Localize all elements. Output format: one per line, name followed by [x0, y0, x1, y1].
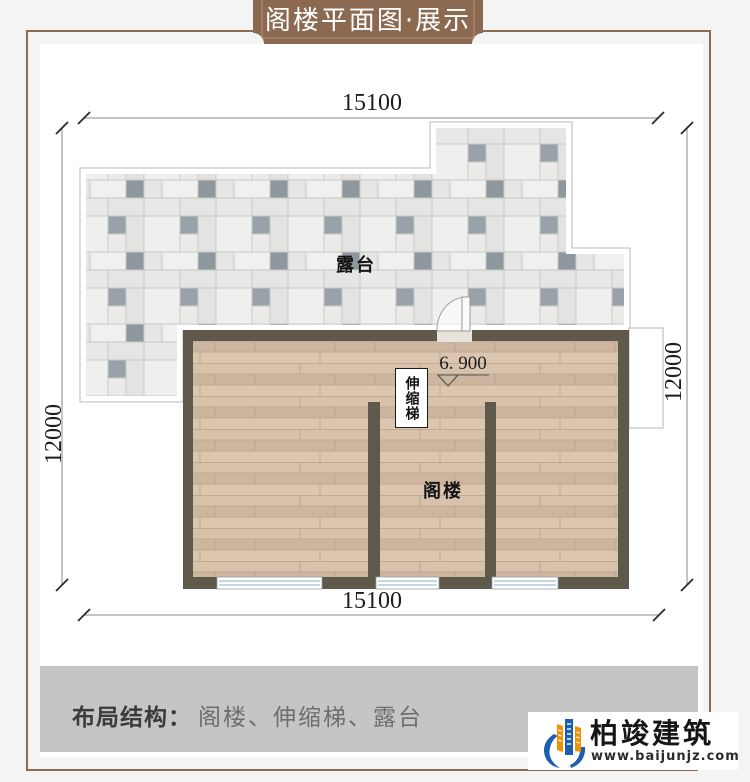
- right-extension-box: [629, 328, 663, 428]
- elevation-value: 6. 900: [439, 353, 487, 374]
- window-3: [492, 577, 558, 589]
- company-website: www.baijunjz.com: [591, 749, 740, 764]
- attic-label: 阁楼: [423, 477, 463, 503]
- floor-plan-page: 15100 15100 12000 12000 6. 900 阁楼平面图·展示 …: [0, 0, 750, 782]
- company-name: 柏竣建筑: [590, 712, 714, 752]
- page-title: 阁楼平面图·展示: [253, 0, 483, 44]
- title-banner: 阁楼平面图·展示: [253, 0, 483, 44]
- retractable-ladder-label-box: 伸缩梯: [395, 368, 428, 428]
- dimension-right: 12000: [661, 342, 687, 402]
- retractable-ladder-label: 伸缩梯: [402, 376, 422, 421]
- dimension-top: 15100: [342, 90, 402, 116]
- terrace-label: 露台: [336, 251, 376, 277]
- dimension-left: 12000: [41, 404, 67, 464]
- partition-wall-right: [485, 402, 496, 577]
- building-logo-icon: [541, 714, 589, 770]
- dimension-bottom: 15100: [342, 588, 402, 614]
- layout-structure-items: 阁楼、伸缩梯、露台: [198, 698, 423, 732]
- partition-wall-left: [368, 402, 380, 577]
- floor-plan-drawing: 15100 15100 12000 12000 6. 900: [0, 0, 750, 782]
- company-logo: 柏竣建筑 www.baijunjz.com: [528, 712, 738, 770]
- window-1: [217, 577, 322, 589]
- layout-structure-label: 布局结构：: [72, 698, 192, 732]
